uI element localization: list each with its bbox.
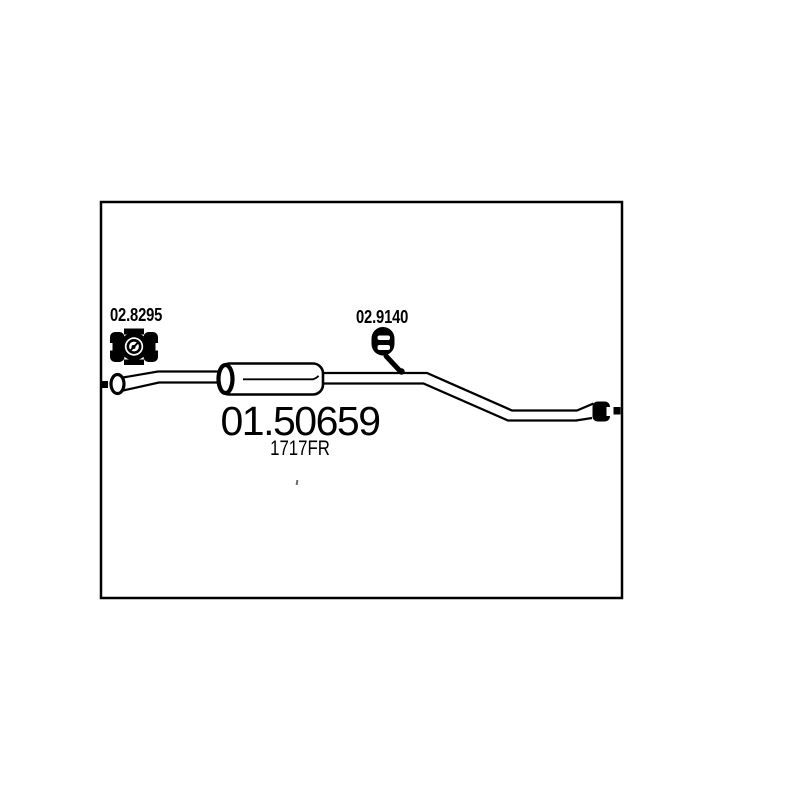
pipe-left-bottom-line — [123, 383, 222, 391]
pipe-left-mount-nub — [102, 381, 109, 388]
pipe-right-connector-nub — [614, 407, 621, 415]
exhaust-clamp-icon — [109, 329, 160, 366]
accessory-hanger-part-number: 02.9140 — [356, 308, 408, 326]
main-part-number: 01.50659 — [170, 401, 430, 442]
product-diagram-page: 02.8295 02.9140 01.50659 1717FR — [0, 0, 800, 800]
hanger-hook-rod — [386, 356, 401, 372]
accessory-clamp-part-number: 02.8295 — [110, 306, 162, 324]
pipe-right-flange-notch — [607, 407, 613, 416]
pipe-left-top-line — [123, 372, 222, 378]
silencer-inlet-ring — [219, 365, 233, 393]
exhaust-diagram-drawing — [0, 0, 800, 800]
hanger-hook-foot — [398, 368, 404, 374]
rubber-hanger-icon — [372, 327, 395, 356]
oe-reference-code: 1717FR — [220, 438, 380, 459]
pipe-left-end-cap — [111, 375, 124, 394]
